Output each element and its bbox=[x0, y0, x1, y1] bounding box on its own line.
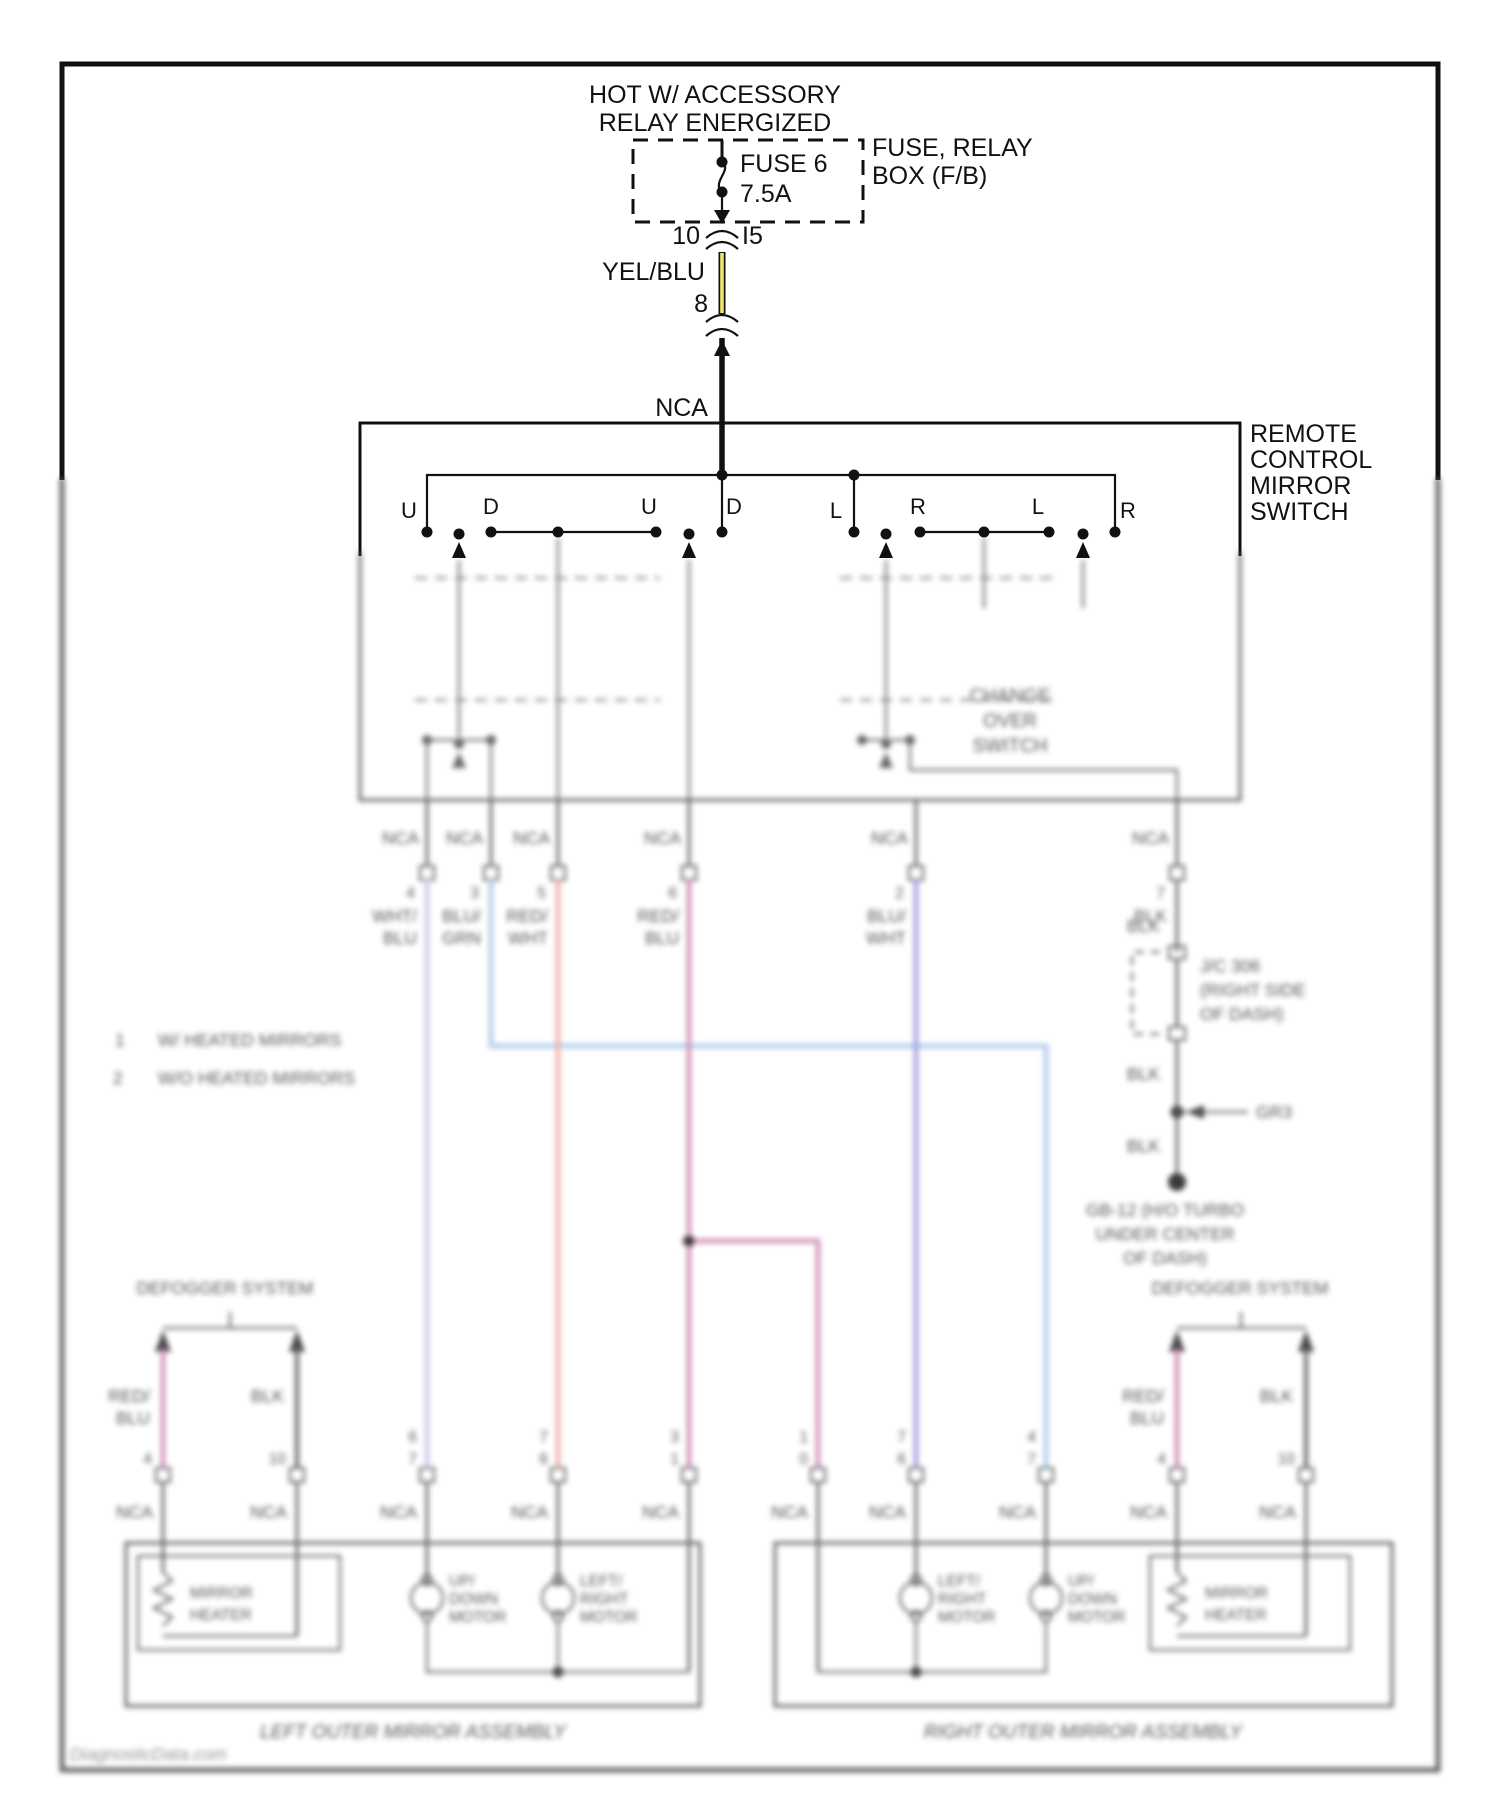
defl-w2-nca: NCA bbox=[250, 1502, 287, 1522]
pin-i5: I5 bbox=[742, 222, 763, 250]
entr2-nca: NCA bbox=[869, 1502, 906, 1522]
asml-m2-line1: LEFT/ bbox=[580, 1573, 623, 1590]
hot-label-line1: HOT W/ ACCESSORY bbox=[589, 81, 841, 109]
arrow-up-icon bbox=[1298, 1330, 1314, 1352]
entl3-pin-top: 3 bbox=[670, 1429, 679, 1446]
defl-w2-pin: 10 bbox=[269, 1451, 287, 1468]
hot-label-line2: RELAY ENERGIZED bbox=[599, 109, 831, 137]
note2-num: 2 bbox=[113, 1068, 123, 1088]
defr-w1-pin: 4 bbox=[1157, 1451, 1166, 1468]
exit5-color2: WHT bbox=[866, 928, 906, 948]
wiring-diagram: HOT W/ ACCESSORY RELAY ENERGIZED FUSE 6 … bbox=[0, 0, 1500, 1814]
exit1-color1: WHT/ bbox=[372, 906, 417, 926]
asmr-m1-line1: LEFT/ bbox=[938, 1573, 981, 1590]
entl2-pin: 6 bbox=[539, 1451, 548, 1468]
defogger-left-title: DEFOGGER SYSTEM bbox=[137, 1278, 314, 1298]
motor-icon-leftright-right bbox=[900, 1575, 932, 1621]
motor-icon-updown-left bbox=[411, 1575, 443, 1621]
defogger-right-title: DEFOGGER SYSTEM bbox=[1152, 1278, 1329, 1298]
asmr-heater-line1: MIRROR bbox=[1205, 1585, 1268, 1602]
entr1-pin: 0 bbox=[799, 1451, 808, 1468]
switch-label-line4: SWITCH bbox=[1250, 498, 1349, 526]
exit-columns: NCA NCA NCA NCA NCA NCA 4 3 5 6 2 7 WHT/… bbox=[372, 800, 1184, 948]
motor-icon-leftright-left bbox=[542, 1575, 574, 1621]
contact-label-r4: R bbox=[1120, 498, 1136, 523]
wire-color-yelblu: YEL/BLU bbox=[602, 258, 705, 286]
connector-icon-8 bbox=[706, 315, 738, 336]
entl3-nca: NCA bbox=[642, 1502, 679, 1522]
exit4-nca: NCA bbox=[644, 828, 681, 848]
page-border-bottom bbox=[62, 478, 1438, 1770]
exit5-color1: BLU/ bbox=[867, 906, 906, 926]
note2-text: W/O HEATED MIRRORS bbox=[158, 1068, 355, 1088]
defl-w2-color: BLK bbox=[251, 1386, 284, 1406]
exit2-pin: 3 bbox=[470, 885, 479, 902]
pin-8: 8 bbox=[694, 290, 708, 318]
asml-heater-line2: HEATER bbox=[190, 1607, 252, 1624]
exit1-pin: 4 bbox=[406, 885, 415, 902]
ground-dot-icon bbox=[1168, 1173, 1186, 1191]
fusebox-label-line2: BOX (F/B) bbox=[872, 162, 987, 190]
asml-m1-line3: MOTOR bbox=[449, 1609, 506, 1626]
right-assembly-label: RIGHT OUTER MIRROR ASSEMBLY bbox=[924, 1722, 1244, 1743]
arrow-up-icon bbox=[1169, 1330, 1185, 1352]
exit3-color1: RED/ bbox=[506, 906, 548, 926]
defogger-left-bracket bbox=[163, 1312, 297, 1328]
entr3-nca: NCA bbox=[999, 1502, 1036, 1522]
pin-10: 10 bbox=[672, 222, 700, 250]
changeover-label-line2: OVER bbox=[983, 711, 1037, 732]
asml-m1-line1: UP/ bbox=[449, 1573, 476, 1590]
left-mirror-assembly: MIRROR HEATER UP/ DOWN MOTOR LEFT/ RIGHT… bbox=[126, 1543, 700, 1743]
switch-bus bbox=[427, 470, 1115, 533]
exit6-pin: 7 bbox=[1156, 885, 1165, 902]
jc-label-line1: J/C 306 bbox=[1200, 956, 1260, 976]
exit2-color1: BLU/ bbox=[442, 906, 481, 926]
entr3-pin: 7 bbox=[1027, 1451, 1036, 1468]
exit2-nca: NCA bbox=[446, 828, 483, 848]
defr-w1-color2: BLU bbox=[1130, 1408, 1164, 1428]
blurred-zone: CHANGE OVER SWITCH NCA NCA NCA NCA NCA bbox=[62, 478, 1438, 1770]
ground-chain: BLK J/C 306 (RIGHT SIDE OF DASH) BLK GR3… bbox=[1086, 880, 1306, 1268]
notes-list: 1 W/ HEATED MIRRORS 2 W/O HEATED MIRRORS bbox=[113, 1030, 355, 1088]
entl1-pin-top: 6 bbox=[408, 1429, 417, 1446]
exit4-pin: 6 bbox=[668, 885, 677, 902]
contact-label-u2: U bbox=[641, 494, 657, 519]
entl1-pin: 7 bbox=[408, 1451, 417, 1468]
blu-grn-wire bbox=[491, 880, 1046, 1468]
heater-element-icon bbox=[154, 1572, 172, 1626]
exit2-color2: GRN bbox=[442, 928, 481, 948]
defr-w2-nca: NCA bbox=[1259, 1502, 1296, 1522]
asml-m2-line2: RIGHT bbox=[580, 1591, 629, 1608]
note1-text: W/ HEATED MIRRORS bbox=[158, 1030, 341, 1050]
defr-w1-color1: RED/ bbox=[1122, 1386, 1164, 1406]
blk-label-3: BLK bbox=[1127, 1136, 1160, 1156]
arrow-up-icon bbox=[289, 1330, 305, 1352]
right-mirror-assembly: LEFT/ RIGHT MOTOR UP/ DOWN MOTOR MIRROR … bbox=[775, 1543, 1392, 1743]
exit4-color2: BLU bbox=[645, 928, 679, 948]
asmr-m1-line2: RIGHT bbox=[938, 1591, 987, 1608]
fusebox-label-line1: FUSE, RELAY bbox=[872, 134, 1033, 162]
asmr-heater-line2: HEATER bbox=[1205, 1607, 1267, 1624]
jc-connector-box bbox=[1132, 952, 1160, 1034]
switch-label-line3: MIRROR bbox=[1250, 472, 1351, 500]
changeover-label-line1: CHANGE bbox=[969, 686, 1050, 707]
blk-label-1: BLK bbox=[1127, 916, 1160, 936]
ground-label-line2: UNDER CENTER bbox=[1095, 1224, 1234, 1244]
entr1-pin-top: 1 bbox=[799, 1429, 808, 1446]
exit6-nca: NCA bbox=[1132, 828, 1169, 848]
ground-label-line1: GB-12 (H/O TURBO bbox=[1086, 1200, 1244, 1220]
note1-num: 1 bbox=[115, 1030, 125, 1050]
contact-label-d2: D bbox=[726, 494, 742, 519]
wire-runs bbox=[427, 880, 1046, 1468]
splice-dot bbox=[1171, 1106, 1184, 1119]
entl3-pin: 1 bbox=[670, 1451, 679, 1468]
fuse-icon bbox=[714, 140, 730, 224]
exit1-nca: NCA bbox=[382, 828, 419, 848]
ground-label-line3: OF DASH) bbox=[1123, 1248, 1207, 1268]
jc-label-line3: OF DASH) bbox=[1200, 1004, 1284, 1024]
defl-w1-nca: NCA bbox=[116, 1502, 153, 1522]
exit3-color2: WHT bbox=[508, 928, 548, 948]
blk-label-2: BLK bbox=[1127, 1064, 1160, 1084]
contact-label-r3: R bbox=[910, 494, 926, 519]
fuse-name: FUSE 6 bbox=[740, 150, 828, 178]
changeover-label-line3: SWITCH bbox=[973, 736, 1048, 757]
defr-w2-pin: 10 bbox=[1278, 1451, 1296, 1468]
entr2-pin-top: 7 bbox=[897, 1429, 906, 1446]
fuse-amp: 7.5A bbox=[740, 180, 792, 208]
splice-label: GR3 bbox=[1256, 1102, 1292, 1122]
defl-w1-color1: RED/ bbox=[108, 1386, 150, 1406]
switch-label-line1: REMOTE bbox=[1250, 420, 1357, 448]
defr-w1-nca: NCA bbox=[1130, 1502, 1167, 1522]
defogger-right-bracket bbox=[1177, 1312, 1306, 1328]
defl-w1-color2: BLU bbox=[116, 1408, 150, 1428]
entries-right: 1 0 NCA 7 6 NCA 4 7 NCA bbox=[771, 1429, 1053, 1672]
contact-label-l3: L bbox=[830, 498, 842, 523]
defogger-right: DEFOGGER SYSTEM RED/ BLU BLK 4 10 NCA NC… bbox=[1122, 1278, 1328, 1636]
entl2-pin-top: 7 bbox=[539, 1429, 548, 1446]
asml-m2-line3: MOTOR bbox=[580, 1609, 637, 1626]
contact-label-u1: U bbox=[401, 498, 417, 523]
exit5-pin: 2 bbox=[895, 885, 904, 902]
arrow-up-icon bbox=[714, 340, 730, 356]
entr3-pin-top: 4 bbox=[1027, 1429, 1036, 1446]
arrow-left-icon bbox=[1186, 1105, 1204, 1119]
watermark: DiagnosticData.com bbox=[70, 1744, 227, 1764]
switch-label-line2: CONTROL bbox=[1250, 446, 1372, 474]
entl1-nca: NCA bbox=[380, 1502, 417, 1522]
asmr-m2-line1: UP/ bbox=[1068, 1573, 1095, 1590]
asml-m1-line2: DOWN bbox=[449, 1591, 498, 1608]
exit4-color1: RED/ bbox=[637, 906, 679, 926]
connector-icon-i5 bbox=[706, 231, 738, 249]
wire-color-nca: NCA bbox=[655, 394, 708, 422]
heater-element-icon bbox=[1168, 1572, 1186, 1626]
entr2-pin: 6 bbox=[897, 1451, 906, 1468]
asmr-m2-line2: DOWN bbox=[1068, 1591, 1117, 1608]
left-assembly-label: LEFT OUTER MIRROR ASSEMBLY bbox=[260, 1722, 567, 1743]
jc-label-line2: (RIGHT SIDE bbox=[1200, 980, 1306, 1000]
exit3-pin: 5 bbox=[537, 885, 546, 902]
motor-icon-updown-right bbox=[1030, 1575, 1062, 1621]
exit5-nca: NCA bbox=[871, 828, 908, 848]
asml-heater-line1: MIRROR bbox=[190, 1585, 253, 1602]
arrow-up-icon bbox=[155, 1330, 171, 1352]
exit1-color2: BLU bbox=[383, 928, 417, 948]
asmr-m1-line3: MOTOR bbox=[938, 1609, 995, 1626]
ghost-rows bbox=[415, 578, 1060, 700]
defl-w1-pin: 4 bbox=[143, 1451, 152, 1468]
defr-w2-color: BLK bbox=[1260, 1386, 1293, 1406]
wiring-diagram-page: HOT W/ ACCESSORY RELAY ENERGIZED FUSE 6 … bbox=[0, 0, 1500, 1814]
contact-label-d1: D bbox=[483, 494, 499, 519]
asmr-m2-line3: MOTOR bbox=[1068, 1609, 1125, 1626]
exit3-nca: NCA bbox=[513, 828, 550, 848]
junction-dot bbox=[683, 1235, 695, 1247]
entr1-nca: NCA bbox=[771, 1502, 808, 1522]
entl2-nca: NCA bbox=[511, 1502, 548, 1522]
sharp-zone: HOT W/ ACCESSORY RELAY ENERGIZED FUSE 6 … bbox=[62, 64, 1438, 558]
contact-label-l4: L bbox=[1032, 494, 1044, 519]
